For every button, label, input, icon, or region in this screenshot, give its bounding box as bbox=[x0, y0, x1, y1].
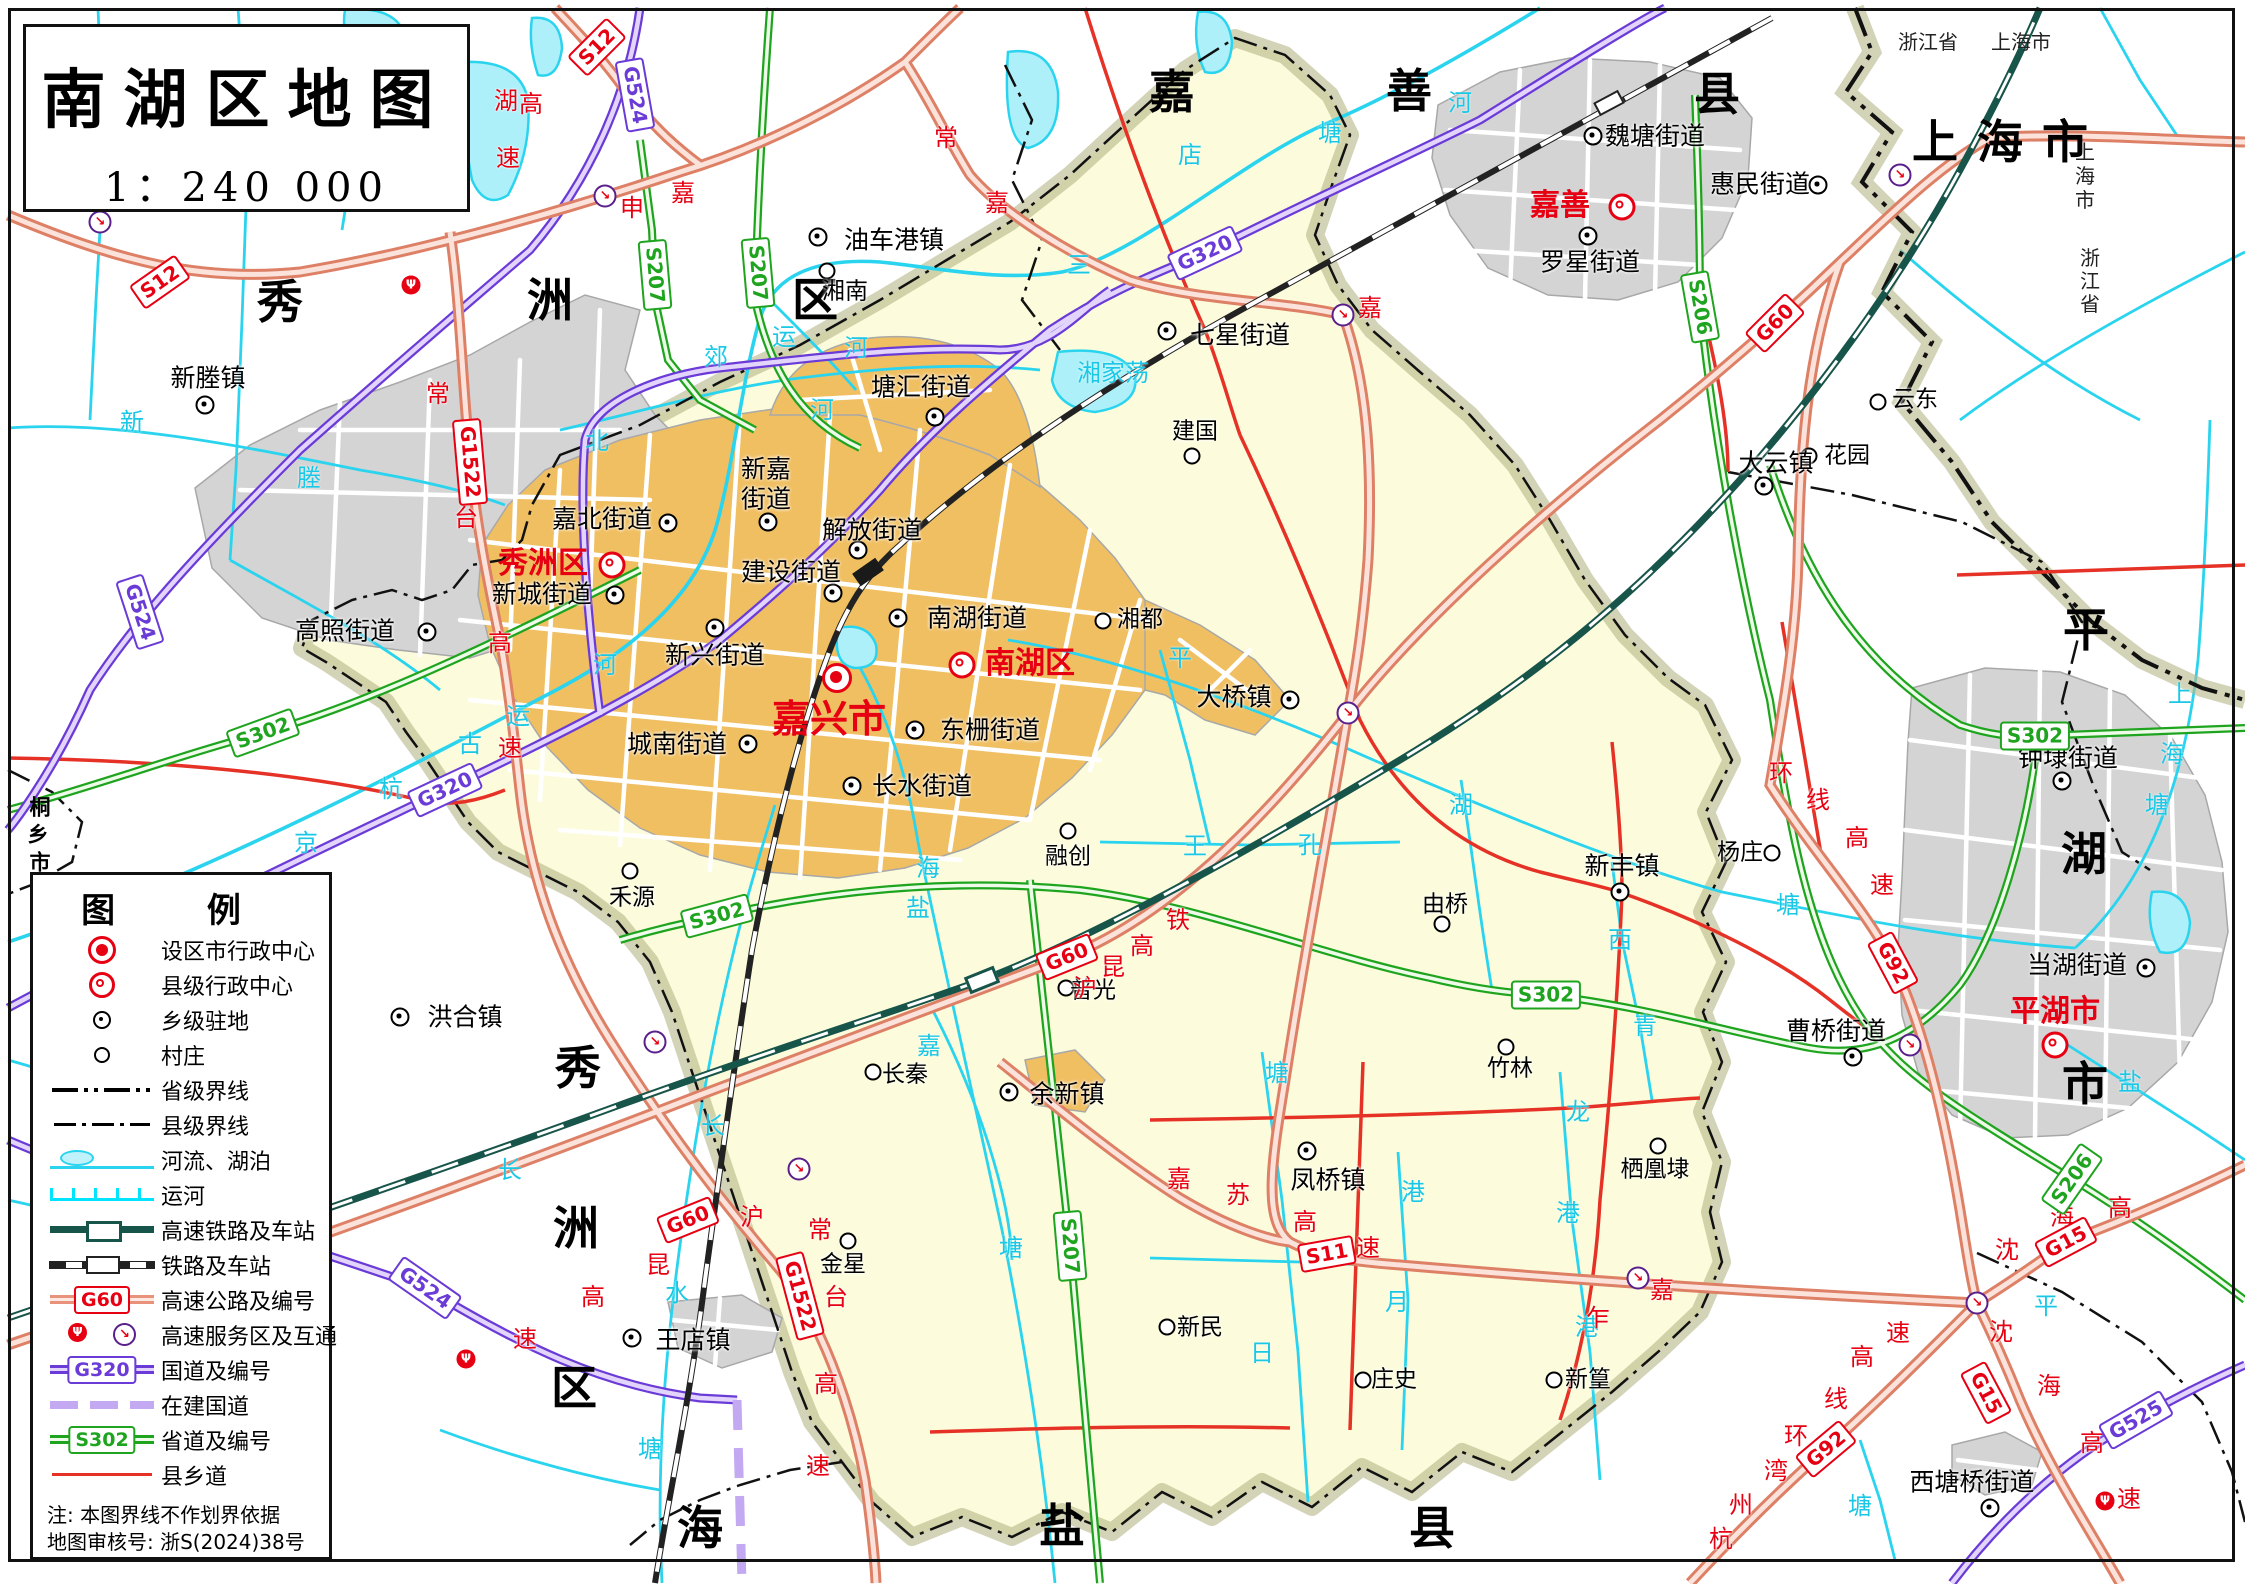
place-label: 大桥镇 bbox=[1196, 685, 1271, 710]
legend-item-label: 运河 bbox=[161, 1179, 205, 1211]
river-label: 河 bbox=[844, 336, 868, 360]
roadname-label: 昆 bbox=[1101, 955, 1125, 979]
place-label: 嘉北街道 bbox=[552, 507, 652, 532]
river-label: 平 bbox=[1168, 646, 1192, 670]
river-label: 平 bbox=[2034, 1294, 2058, 1318]
region-label: 湖 bbox=[2061, 831, 2107, 877]
place-label: 建国 bbox=[1172, 421, 1218, 444]
sym-town-icon bbox=[1611, 883, 1630, 902]
sym-county-icon bbox=[599, 552, 626, 579]
river-label: 塘 bbox=[638, 1437, 662, 1461]
legend-item-rail: 铁路及车站 bbox=[43, 1247, 329, 1282]
place-label: 大云镇 bbox=[1738, 451, 1813, 476]
legend-item-label: 县级行政中心 bbox=[161, 969, 293, 1001]
river-label: 塘 bbox=[1848, 1494, 1872, 1518]
place-label: 海 bbox=[2075, 166, 2095, 186]
roadname-label: 高 bbox=[488, 631, 512, 655]
place-label: 新塍镇 bbox=[170, 366, 245, 391]
place-label: 街道 bbox=[741, 487, 791, 512]
river-legend-icon bbox=[43, 1150, 161, 1169]
river-label: 龙 bbox=[1566, 1100, 1590, 1124]
roadname-label: 台 bbox=[824, 1285, 848, 1309]
legend-badge: G320 bbox=[67, 1356, 136, 1384]
sym-town-icon bbox=[809, 228, 828, 247]
sym-svc-icon bbox=[2096, 1492, 2115, 1511]
roadname-label: 杭 bbox=[1709, 1527, 1733, 1551]
legend-item-label: 铁路及车站 bbox=[161, 1249, 271, 1281]
legend-item-cnty: 县乡道 bbox=[43, 1457, 329, 1492]
river-label: 三 bbox=[1067, 253, 1091, 277]
river-label: 塘 bbox=[999, 1236, 1023, 1260]
sym-town-icon bbox=[1809, 176, 1828, 195]
prov-legend-icon: S302 bbox=[43, 1435, 161, 1444]
place-label: 湘都 bbox=[1117, 609, 1163, 632]
legend-item-label: 村庄 bbox=[161, 1039, 205, 1071]
place-label: 西塘桥街道 bbox=[1909, 1470, 2034, 1495]
roadname-label: 常 bbox=[426, 382, 450, 406]
road-shield: S207 bbox=[637, 239, 672, 311]
place-label: 浙 bbox=[2080, 248, 2100, 268]
river-label: 北 bbox=[585, 429, 609, 453]
road-shield: S302 bbox=[1511, 981, 1581, 1010]
river-label: 湘家荡 bbox=[1077, 361, 1149, 385]
place-label: 凤桥镇 bbox=[1290, 1168, 1365, 1193]
legend-item-village: 村庄 bbox=[43, 1037, 329, 1072]
sym-int-icon bbox=[1966, 1292, 1989, 1315]
legend-item-label: 乡级驻地 bbox=[161, 1004, 249, 1036]
river-label: 日 bbox=[1250, 1341, 1274, 1365]
legend-item-hsr: 高速铁路及车站 bbox=[43, 1212, 329, 1247]
place-label: 洪合镇 bbox=[427, 1005, 502, 1030]
river-label: 河 bbox=[1448, 91, 1472, 115]
legend-note-2: 地图审核号: 浙S(2024)38号 bbox=[47, 1529, 329, 1556]
roadname-label: 速 bbox=[498, 736, 522, 760]
sym-int-icon bbox=[1627, 1267, 1650, 1290]
town-legend-icon bbox=[43, 1011, 161, 1029]
region-label: 县 bbox=[1409, 1505, 1455, 1551]
place-label: 东栅街道 bbox=[940, 718, 1040, 743]
road-shield: S302 bbox=[2000, 722, 2070, 751]
road-shield: S207 bbox=[740, 237, 775, 309]
roadname-label: 昆 bbox=[646, 1253, 670, 1277]
region-label: 嘉 bbox=[1149, 69, 1195, 115]
legend-item-canal: 运河 bbox=[43, 1177, 329, 1212]
roadname-label: 速 bbox=[1870, 873, 1894, 897]
sym-village-icon bbox=[1095, 613, 1112, 630]
region-label: 平 bbox=[2063, 607, 2109, 653]
river-label: 青 bbox=[1633, 1014, 1657, 1038]
sym-town-icon bbox=[1158, 322, 1177, 341]
legend-item-label: 县级界线 bbox=[161, 1109, 249, 1141]
region-label: 盐 bbox=[1039, 1503, 1085, 1549]
constr-legend-icon bbox=[43, 1401, 161, 1409]
place-label: 余新镇 bbox=[1029, 1082, 1104, 1107]
place-label: 南湖区 bbox=[985, 649, 1075, 679]
legend-badge: G60 bbox=[74, 1286, 130, 1314]
legend-item-label: 国道及编号 bbox=[161, 1354, 271, 1386]
river-label: 水 bbox=[665, 1281, 689, 1305]
place-label: 江 bbox=[2080, 271, 2100, 291]
sym-town-icon bbox=[196, 396, 215, 415]
place-label: 金星 bbox=[820, 1254, 866, 1277]
hsr-legend-icon bbox=[43, 1226, 161, 1233]
sym-town-icon bbox=[843, 777, 862, 796]
region-label: 善 bbox=[1386, 68, 1432, 114]
legend-item-prov: S302省道及编号 bbox=[43, 1422, 329, 1457]
river-label: 河 bbox=[810, 398, 834, 422]
sym-village-icon bbox=[840, 1233, 857, 1250]
sym-town-icon bbox=[1981, 1499, 2000, 1518]
place-label: 乡 bbox=[28, 824, 49, 845]
place-label: 新民 bbox=[1177, 1317, 1223, 1340]
place-label: 浙江省 bbox=[1898, 32, 1958, 52]
place-label: 市 bbox=[2075, 190, 2095, 210]
place-label: 新城街道 bbox=[492, 582, 592, 607]
legend-item-city: 设区市行政中心 bbox=[43, 932, 329, 967]
place-label: 建设街道 bbox=[741, 560, 841, 585]
place-label: 禾源 bbox=[609, 887, 655, 910]
roadname-label: 速 bbox=[496, 146, 520, 170]
place-label: 栖凰埭 bbox=[1621, 1159, 1690, 1182]
roadname-label: 嘉 bbox=[985, 191, 1009, 215]
roadname-label: 州 bbox=[1729, 1493, 1753, 1517]
river-label: 海 bbox=[2160, 742, 2184, 766]
legend-item-countyline: 县级界线 bbox=[43, 1107, 329, 1142]
river-label: 盐 bbox=[906, 896, 930, 920]
sym-town-icon bbox=[2053, 772, 2072, 791]
sym-town-icon bbox=[889, 609, 908, 628]
legend-item-exp: G60高速公路及编号 bbox=[43, 1282, 329, 1317]
page-title: 南湖区地图 bbox=[26, 49, 467, 141]
river-label: 塘 bbox=[1776, 893, 1800, 917]
sym-int-icon bbox=[788, 1158, 811, 1181]
place-label: 平湖市 bbox=[2010, 997, 2100, 1027]
river-label: 运 bbox=[506, 704, 530, 728]
river-label: 新 bbox=[120, 410, 144, 434]
sym-int-icon bbox=[644, 1031, 667, 1054]
county-legend-icon bbox=[43, 972, 161, 998]
river-label: 长 bbox=[701, 1114, 725, 1138]
roadname-label: 高 bbox=[814, 1372, 838, 1396]
roadname-label: 苏 bbox=[1226, 1183, 1250, 1207]
legend-box: 图 例 设区市行政中心县级行政中心乡级驻地村庄省级界线县级界线河流、湖泊运河高速… bbox=[30, 872, 332, 1560]
canal-legend-icon bbox=[43, 1188, 161, 1201]
sym-village-icon bbox=[1184, 448, 1201, 465]
region-label: 洲 bbox=[553, 1205, 599, 1251]
sym-town-icon bbox=[1298, 1142, 1317, 1161]
roadname-label: 嘉 bbox=[1167, 1167, 1191, 1191]
place-label: 魏塘街道 bbox=[1605, 124, 1705, 149]
roadname-label: 嘉 bbox=[671, 181, 695, 205]
sym-village-icon bbox=[1870, 394, 1887, 411]
roadname-label: 沈 bbox=[1995, 1238, 2019, 1262]
place-label: 七星街道 bbox=[1190, 323, 1290, 348]
place-label: 新嘉 bbox=[741, 457, 791, 482]
region-label: 秀 bbox=[257, 279, 303, 325]
place-label: 罗星街道 bbox=[1540, 250, 1640, 275]
legend-note-1: 注: 本图界线不作划界依据 bbox=[47, 1502, 329, 1529]
sym-village-icon bbox=[622, 863, 639, 880]
river-label: 西 bbox=[1608, 928, 1632, 952]
roadname-label: 沪 bbox=[740, 1205, 764, 1229]
region-label: 秀 bbox=[555, 1045, 601, 1091]
legend-item-provline: 省级界线 bbox=[43, 1072, 329, 1107]
sym-town-icon bbox=[2137, 959, 2156, 978]
nat-legend-icon: G320 bbox=[43, 1365, 161, 1374]
roadname-label: 嘉 bbox=[1358, 296, 1382, 320]
region-label: 海 bbox=[1977, 119, 2023, 165]
sym-town-icon bbox=[1579, 227, 1598, 246]
roadname-label: 常 bbox=[934, 126, 958, 150]
place-label: 长秦 bbox=[882, 1064, 928, 1087]
cnty-legend-icon bbox=[43, 1473, 161, 1477]
sym-town-icon bbox=[659, 514, 678, 533]
river-label: 塘 bbox=[1318, 121, 1342, 145]
place-label: 花园 bbox=[1824, 445, 1870, 468]
place-label: 杨庄 bbox=[1717, 842, 1763, 865]
road-shield: S207 bbox=[1052, 1210, 1087, 1282]
sym-town-icon bbox=[906, 721, 925, 740]
legend-item-label: 设区市行政中心 bbox=[161, 934, 315, 966]
river-label: 王 bbox=[1183, 834, 1207, 858]
place-label: 省 bbox=[2080, 294, 2100, 314]
place-label: 融创 bbox=[1045, 846, 1091, 869]
river-label: 长 bbox=[498, 1158, 522, 1182]
river-label: 月 bbox=[1385, 1290, 1409, 1314]
roadname-label: 台 bbox=[454, 506, 478, 530]
roadname-label: 高 bbox=[1845, 826, 1869, 850]
place-label: 王店镇 bbox=[655, 1328, 730, 1353]
sym-town-icon bbox=[759, 513, 778, 532]
roadname-label: 海 bbox=[2037, 1374, 2061, 1398]
legend-item-label: 省道及编号 bbox=[161, 1424, 271, 1456]
river-label: 店 bbox=[1178, 143, 1202, 167]
place-label: 庄史 bbox=[1371, 1369, 1417, 1392]
roadname-label: 高 bbox=[1130, 934, 1154, 958]
place-label: 嘉善 bbox=[1530, 191, 1590, 221]
sym-county-icon bbox=[1609, 194, 1636, 221]
roadname-label: 沪 bbox=[1073, 976, 1097, 1000]
legend-item-label: 在建国道 bbox=[161, 1389, 249, 1421]
exp-legend-icon: G60 bbox=[43, 1295, 161, 1304]
region-label: 市 bbox=[2062, 1061, 2108, 1107]
place-label: 云东 bbox=[1892, 389, 1938, 412]
sym-int-icon bbox=[594, 185, 617, 208]
sym-county-icon bbox=[949, 652, 976, 679]
roadname-label: 速 bbox=[2117, 1487, 2141, 1511]
roadname-label: 常 bbox=[808, 1218, 832, 1242]
legend-item-nat: G320国道及编号 bbox=[43, 1352, 329, 1387]
legend-rows: 设区市行政中心县级行政中心乡级驻地村庄省级界线县级界线河流、湖泊运河高速铁路及车… bbox=[33, 932, 329, 1492]
sym-village-icon bbox=[1498, 1039, 1515, 1056]
sym-city-icon bbox=[822, 663, 852, 693]
roadname-label: 高 bbox=[2080, 1431, 2104, 1455]
river-label: 郊 bbox=[704, 345, 728, 369]
roadname-label: 嘉 bbox=[1650, 1278, 1674, 1302]
roadname-label: 线 bbox=[1806, 788, 1830, 812]
river-label: 孔 bbox=[1298, 833, 1322, 857]
roadname-label: 速 bbox=[806, 1454, 830, 1478]
legend-item-label: 河流、湖泊 bbox=[161, 1144, 271, 1176]
place-label: 南湖街道 bbox=[927, 606, 1027, 631]
legend-item-label: 高速公路及编号 bbox=[161, 1284, 315, 1316]
roadname-label: 湾 bbox=[1764, 1459, 1788, 1483]
place-label: 新兴街道 bbox=[665, 643, 765, 668]
place-label: 惠民街道 bbox=[1710, 172, 1810, 197]
roadname-label: 速 bbox=[513, 1327, 537, 1351]
place-label: 当湖街道 bbox=[2027, 953, 2127, 978]
river-label: 塘 bbox=[1265, 1061, 1289, 1085]
legend-item-label: 高速铁路及车站 bbox=[161, 1214, 315, 1246]
river-label: 嘉 bbox=[917, 1034, 941, 1058]
region-label: 海 bbox=[677, 1505, 723, 1551]
sym-village-icon bbox=[1355, 1372, 1372, 1389]
sym-village-icon bbox=[1434, 916, 1451, 933]
place-label: 新篁 bbox=[1565, 1369, 1611, 1392]
place-label: 桐 bbox=[30, 797, 51, 818]
sym-town-icon bbox=[418, 623, 437, 642]
sym-village-icon bbox=[819, 263, 836, 280]
sym-village-icon bbox=[1650, 1138, 1667, 1155]
place-label: 油车港镇 bbox=[844, 228, 944, 253]
river-label: 京 bbox=[294, 831, 318, 855]
river-label: 古 bbox=[458, 732, 482, 756]
region-label: 洲 bbox=[527, 277, 573, 323]
river-label: 运 bbox=[772, 325, 796, 349]
sym-town-icon bbox=[623, 1329, 642, 1348]
legend-item-svc: 高速服务区及互通 bbox=[43, 1317, 329, 1352]
sym-village-icon bbox=[1060, 823, 1077, 840]
roadname-label: 沈 bbox=[1989, 1320, 2013, 1344]
sym-county-icon bbox=[2042, 1032, 2069, 1059]
village-legend-icon bbox=[43, 1047, 161, 1063]
sym-town-icon bbox=[1755, 477, 1774, 496]
roadname-label: 环 bbox=[1769, 761, 1793, 785]
place-label: 长水街道 bbox=[872, 774, 972, 799]
legend-badge: S302 bbox=[68, 1426, 135, 1454]
roadname-label: 速 bbox=[1886, 1321, 1910, 1345]
place-label: 市 bbox=[30, 852, 51, 873]
river-label: 杭 bbox=[379, 777, 403, 801]
roadname-label: 湖 bbox=[494, 89, 518, 113]
sym-village-icon bbox=[1764, 845, 1781, 862]
river-label: 港 bbox=[1401, 1180, 1425, 1204]
roadname-label: 申 bbox=[620, 196, 644, 220]
region-label: 区 bbox=[551, 1365, 597, 1411]
region-label: 县 bbox=[1694, 71, 1740, 117]
place-label: 嘉兴市 bbox=[772, 700, 886, 738]
legend-title: 图 例 bbox=[33, 883, 329, 932]
roadname-label: 铁 bbox=[1166, 908, 1190, 932]
place-label: 新丰镇 bbox=[1584, 854, 1659, 879]
city-legend-icon bbox=[43, 936, 161, 964]
river-label: 盐 bbox=[2118, 1070, 2142, 1094]
roadname-label: 乍 bbox=[1586, 1306, 1610, 1330]
sym-town-icon bbox=[1000, 1083, 1019, 1102]
river-label: 塍 bbox=[297, 466, 321, 490]
legend-item-town: 乡级驻地 bbox=[43, 1002, 329, 1037]
place-label: 竹林 bbox=[1487, 1058, 1533, 1081]
legend-item-label: 县乡道 bbox=[161, 1459, 227, 1491]
sym-town-icon bbox=[706, 619, 725, 638]
countyline-legend-icon bbox=[43, 1123, 161, 1126]
legend-item-label: 省级界线 bbox=[161, 1074, 249, 1106]
river-label: 上 bbox=[2168, 682, 2192, 706]
place-label: 上 bbox=[2075, 142, 2095, 162]
sym-town-icon bbox=[606, 586, 625, 605]
roadname-label: 线 bbox=[1824, 1387, 1848, 1411]
place-label: 曹桥街道 bbox=[1786, 1019, 1886, 1044]
roadname-label: 高 bbox=[1850, 1345, 1874, 1369]
roadname-label: 高 bbox=[519, 92, 543, 116]
sym-int-icon bbox=[1337, 702, 1360, 725]
place-label: 湘南 bbox=[822, 281, 868, 304]
roadname-label: 环 bbox=[1784, 1424, 1808, 1448]
sym-town-icon bbox=[926, 408, 945, 427]
river-label: 塘 bbox=[2145, 793, 2169, 817]
river-label: 海 bbox=[916, 856, 940, 880]
rail-legend-icon bbox=[43, 1261, 161, 1269]
place-label: 上海市 bbox=[1991, 32, 2051, 52]
place-label: 解放街道 bbox=[822, 518, 922, 543]
river-label: 湖 bbox=[1449, 793, 1473, 817]
place-label: 秀洲区 bbox=[498, 549, 588, 579]
region-label: 上 bbox=[1912, 119, 1958, 165]
sym-town-icon bbox=[739, 735, 758, 754]
sym-village-icon bbox=[1159, 1319, 1176, 1336]
legend-item-county: 县级行政中心 bbox=[43, 967, 329, 1002]
sym-village-icon bbox=[1546, 1372, 1563, 1389]
river-label: 河 bbox=[593, 653, 617, 677]
place-label: 由桥 bbox=[1422, 894, 1468, 917]
sym-town-icon bbox=[1844, 1048, 1863, 1067]
river-label: 港 bbox=[1556, 1201, 1580, 1225]
sym-int-icon bbox=[1332, 304, 1355, 327]
roadname-label: 高 bbox=[2108, 1196, 2132, 1220]
place-label: 塘汇街道 bbox=[871, 375, 971, 400]
provline-legend-icon bbox=[43, 1088, 161, 1092]
map-stage: 南湖区地图 1：240 000 图 例 设区市行政中心县级行政中心乡级驻地村庄省… bbox=[0, 0, 2245, 1584]
roadname-label: 高 bbox=[1293, 1210, 1317, 1234]
legend-item-constr: 在建国道 bbox=[43, 1387, 329, 1422]
map-scale: 1：240 000 bbox=[26, 155, 467, 213]
sym-svc-icon bbox=[457, 1350, 476, 1369]
legend-item-label: 高速服务区及互通 bbox=[161, 1319, 337, 1351]
sym-town-icon bbox=[1584, 127, 1603, 146]
title-box: 南湖区地图 1：240 000 bbox=[23, 24, 470, 212]
legend-item-river: 河流、湖泊 bbox=[43, 1142, 329, 1177]
sym-int-icon bbox=[1889, 164, 1912, 187]
sym-svc-icon bbox=[402, 276, 421, 295]
sym-int-icon bbox=[1899, 1034, 1922, 1057]
svc-legend-icon bbox=[43, 1323, 161, 1346]
place-label: 高照街道 bbox=[295, 619, 395, 644]
roadname-label: 速 bbox=[1356, 1236, 1380, 1260]
sym-town-icon bbox=[1281, 691, 1300, 710]
sym-village-icon bbox=[865, 1064, 882, 1081]
place-label: 城南街道 bbox=[627, 732, 727, 757]
roadname-label: 高 bbox=[581, 1285, 605, 1309]
sym-town-icon bbox=[391, 1008, 410, 1027]
sym-int-icon bbox=[89, 211, 112, 234]
